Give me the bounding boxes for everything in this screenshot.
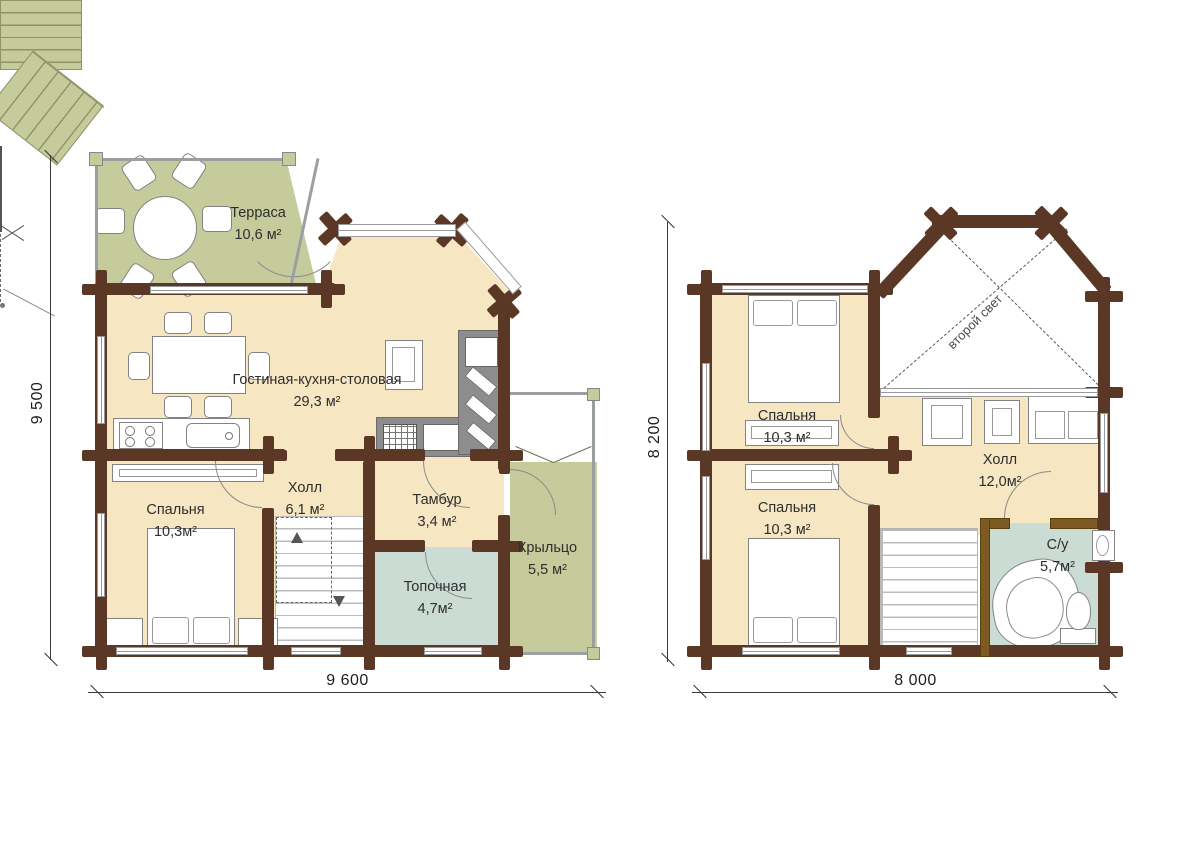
bay-window [338,224,456,237]
dimension-line-left [50,155,51,660]
sink-drain [225,432,233,440]
hall-right-window [1100,413,1108,493]
room-area: 10,3м² [128,522,223,544]
bedroom-2-wardrobe [745,464,839,490]
terrace-post-left [89,152,103,166]
floor-plan-image: Терраса 10,6 м² Гостиная-кухня-столовая … [0,0,1191,842]
sink-basin [1096,535,1109,556]
stair-arrow-up-head [291,532,303,543]
wardrobe-hanger [465,366,498,397]
room-area: 5,7м² [1020,557,1095,579]
wardrobe-slot [465,337,498,367]
room-area: 10,6 м² [212,225,304,247]
stairs-top-edge [880,528,978,530]
toilet-tank [1060,628,1096,644]
dimension-value-9600: 9 600 [310,672,385,690]
stove [119,422,163,449]
bedroom-bottom-window [116,647,248,655]
room-area: 12,0м² [950,472,1050,494]
wall [363,461,375,657]
porch-post-bottom [587,647,600,660]
room-label-bathroom: С/у 5,7м² [1020,535,1095,579]
room-name: Холл [950,450,1050,472]
room-name: С/у [1020,535,1095,557]
stove-burner [145,437,155,447]
stair-handrail [3,288,55,316]
room-name: Терраса [212,203,304,225]
dimension-value-9500: 9 500 [29,375,47,431]
dimension-line-right-plan [667,222,668,662]
room-name: Крыльцо [505,538,590,560]
toilet-bowl [1066,592,1091,630]
room-name: Спальня [738,406,836,428]
dimension-tick [44,653,57,666]
staircase-first-floor [275,516,365,648]
room-area: 5,5 м² [505,560,590,582]
terrace-chair [95,208,125,234]
hall-armchair [922,398,972,446]
bedroom-left-window [97,513,105,597]
terrace-rail-left [95,158,98,285]
living-left-window [97,336,105,424]
room-name: Холл [265,478,345,500]
bedroom-1-left-window [702,363,710,451]
room-label-void: второй свет [929,276,1021,368]
bedroom-2-left-window [702,476,710,560]
wardrobe-inner [751,470,832,483]
bathtub-drain [0,303,5,308]
bathroom-sink [1092,530,1115,561]
bed-pillow [193,617,230,644]
room-name: Спальня [738,498,836,520]
bedroom-1-bed [748,295,840,403]
room-name: Спальня [128,500,223,522]
bedroom-2-bed [748,538,840,646]
terrace-wall-window [150,286,308,294]
room-label-bedroom: Спальня 10,3м² [128,500,223,544]
bed-pillow [797,300,837,326]
room-label-porch: Крыльцо 5,5 м² [505,538,590,582]
room-area: 4,7м² [385,599,485,621]
staircase-second-floor [880,530,978,646]
stair-arrow-up-line [0,146,2,192]
kitchen-sink [186,423,240,448]
room-area: 6,1 м² [265,500,345,522]
side-table-inner [992,408,1012,436]
room-area: 29,3 м² [222,392,412,414]
terrace-post-right [282,152,296,166]
stair-chevron-right [2,226,24,241]
dining-chair [164,312,192,334]
bed-pillow [152,617,189,644]
hall-bottom-window [291,647,341,655]
porch-rail-top [510,392,595,395]
bed-pillow [797,617,837,643]
hall-void-window-band [880,388,1098,397]
bathroom-partition [980,518,990,657]
wall [700,449,898,461]
dimension-line-bottom-right [692,692,1118,693]
dimension-value-8200: 8 200 [646,409,664,465]
dining-chair [204,312,232,334]
wardrobe-hanger [465,394,498,425]
stair-dash-outline [276,517,332,603]
bed-pillow [753,617,793,643]
bathroom-partition [1050,518,1098,529]
room-name: Тамбур [393,490,481,512]
dimension-line-bottom-left [88,692,606,693]
dimension-tick [661,215,674,228]
dining-chair [128,352,150,380]
stove-burner [145,426,155,436]
boiler-bottom-window [424,647,482,655]
porch-rail-bottom [510,652,597,655]
dining-chair [164,396,192,418]
room-label-hall-2: Холл 12,0м² [950,450,1050,494]
room-label-tambour: Тамбур 3,4 м² [393,490,481,534]
room-name: Топочная [385,577,485,599]
room-label-bedroom-1: Спальня 10,3 м² [738,406,836,450]
dimension-tick [661,653,674,666]
stair-arrow-down-head [333,596,345,607]
armchair-seat [931,405,963,439]
wardrobe-hanger [466,422,497,450]
room-label-hall: Холл 6,1 м² [265,478,345,522]
terrace-rail-top [95,158,288,161]
porch-post-top [587,388,600,401]
bedroom-2-bottom-window [742,647,840,655]
room-area: 10,3 м² [738,520,836,542]
room-label-bedroom-2: Спальня 10,3 м² [738,498,836,542]
room-label-terrace: Терраса 10,6 м² [212,203,304,247]
room-area: 10,3 м² [738,428,836,450]
wardrobe-hatch-box [383,424,417,451]
room-label-boiler: Топочная 4,7м² [385,577,485,621]
wall [374,540,425,552]
terrace-round-table [133,196,197,260]
stove-burner [125,437,135,447]
hall-side-table [984,400,1020,444]
bedroom-bed [147,528,235,650]
sofa-cushion [1068,411,1098,439]
sofa-cushion [1035,411,1065,439]
porch-step-arrow-right [553,446,591,463]
wardrobe-slot [423,424,459,451]
room-area: 3,4 м² [393,512,481,534]
stairs-bottom-window [906,647,952,655]
room-label-living: Гостиная-кухня-столовая 29,3 м² [222,370,412,414]
stair-dash-path [0,234,1,302]
stair-divider [881,531,883,647]
bedroom-1-top-window [722,285,868,293]
dimension-value-8000: 8 000 [878,672,953,690]
room-name: Гостиная-кухня-столовая [222,370,412,392]
porch-rail-right [592,392,595,655]
hall-sofa [1028,396,1104,444]
room-name: второй свет [929,276,1021,368]
bed-pillow [753,300,793,326]
stove-burner [125,426,135,436]
